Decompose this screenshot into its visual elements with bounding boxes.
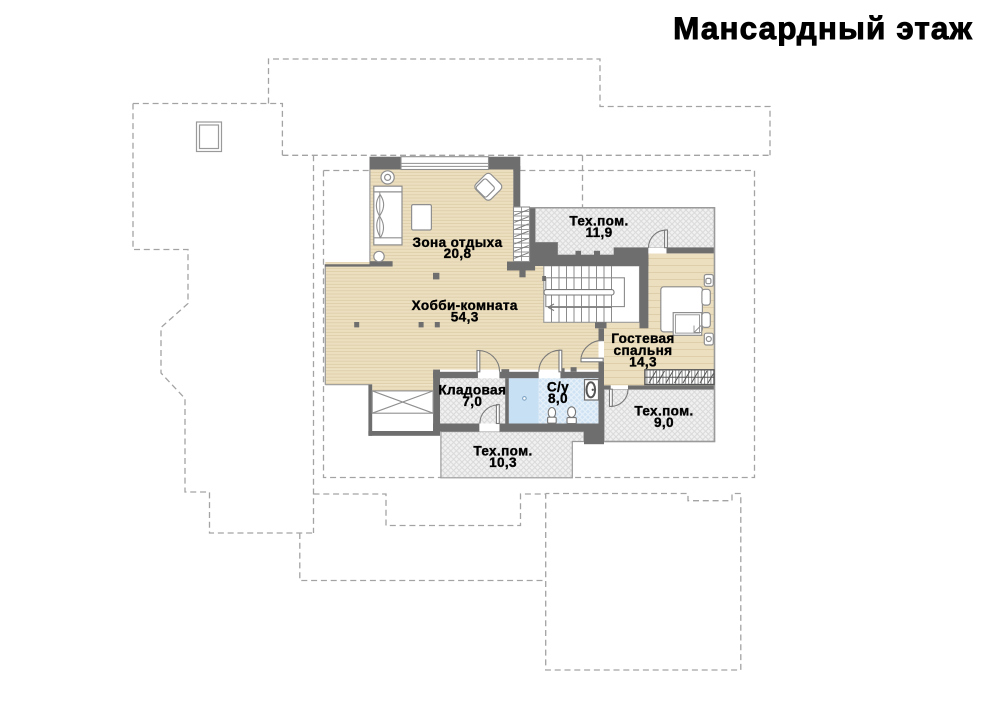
svg-text:11,9: 11,9 bbox=[585, 225, 612, 240]
svg-text:7,0: 7,0 bbox=[462, 394, 482, 409]
svg-text:9,0: 9,0 bbox=[654, 415, 674, 430]
svg-text:54,3: 54,3 bbox=[451, 309, 479, 324]
svg-text:20,8: 20,8 bbox=[444, 246, 472, 261]
svg-text:10,3: 10,3 bbox=[489, 455, 517, 470]
svg-text:8,0: 8,0 bbox=[548, 391, 568, 406]
svg-text:14,3: 14,3 bbox=[629, 355, 657, 370]
svg-text:Мансардный этаж: Мансардный этаж bbox=[673, 10, 973, 46]
